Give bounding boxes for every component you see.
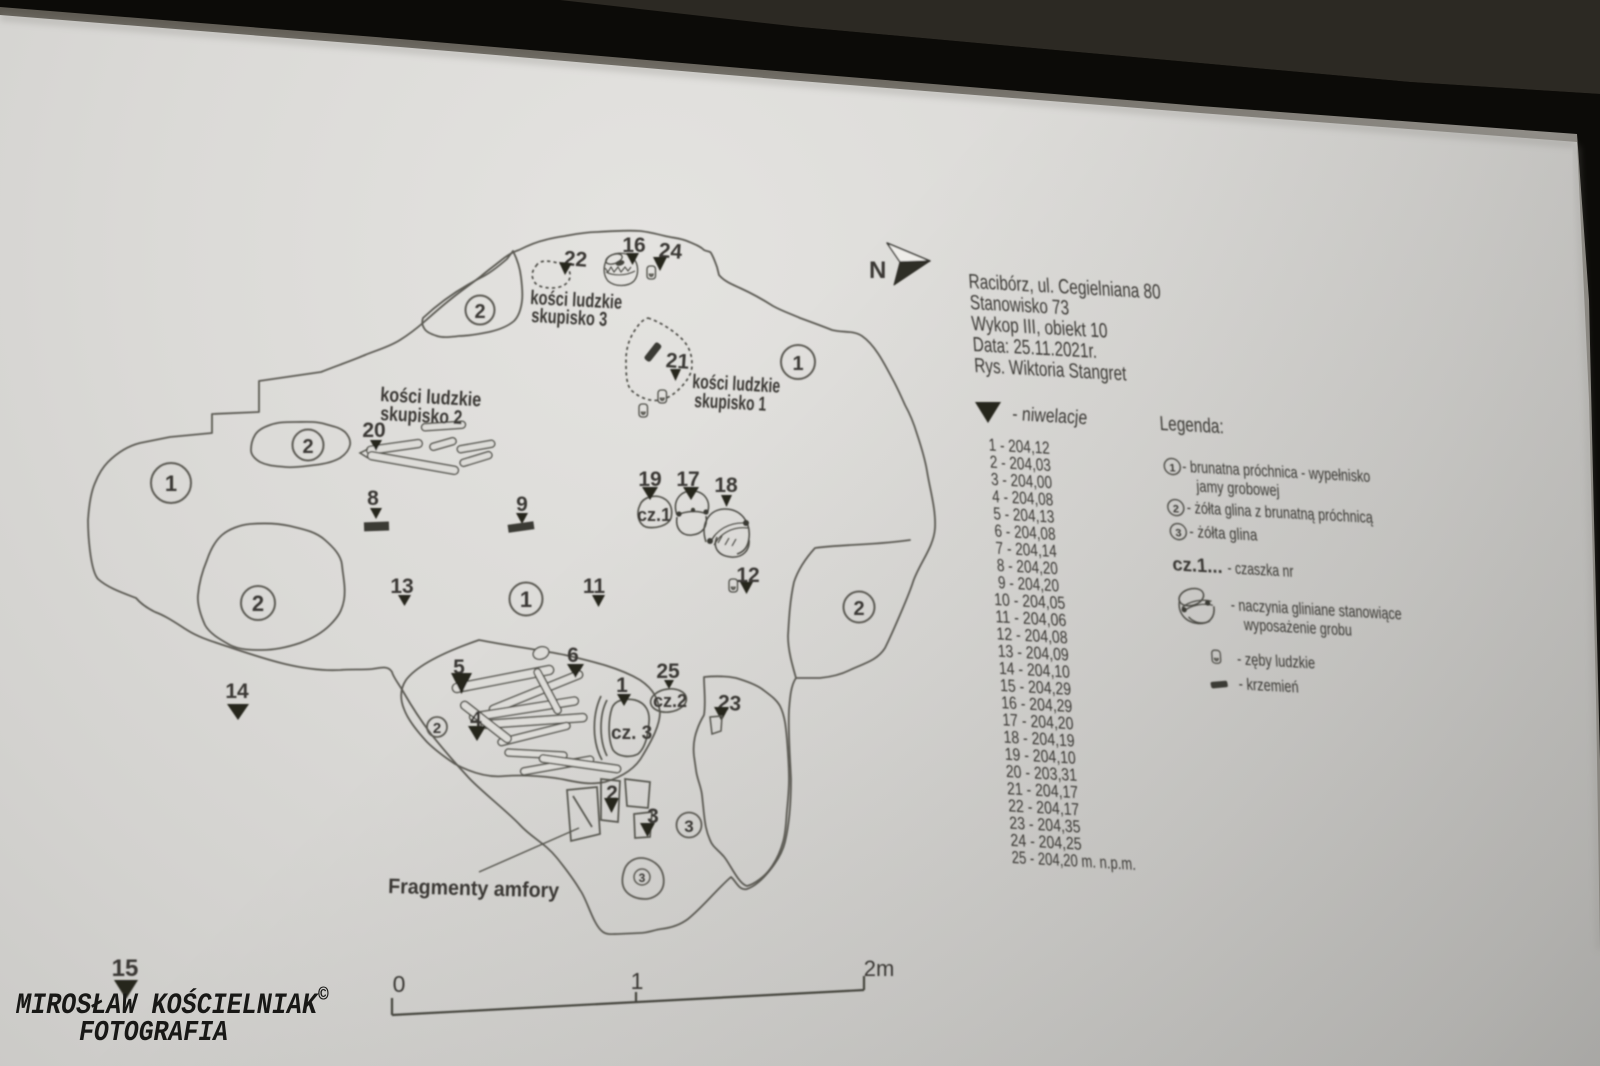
svg-text:Fragmenty amfory: Fragmenty amfory [388,875,560,902]
svg-text:1: 1 [1169,462,1176,474]
svg-text:15: 15 [112,955,139,982]
svg-text:cz.2: cz.2 [653,691,687,711]
svg-text:- krzemień: - krzemień [1238,674,1299,696]
svg-text:1: 1 [631,968,644,994]
svg-text:0: 0 [393,971,406,997]
svg-text:1: 1 [520,587,532,612]
svg-text:1: 1 [616,674,628,697]
svg-text:skupisko 2: skupisko 2 [380,403,463,429]
svg-text:25: 25 [656,660,680,683]
svg-text:©: © [318,986,329,1006]
svg-text:11: 11 [583,575,606,598]
svg-text:3: 3 [684,817,693,836]
svg-text:N: N [869,257,886,284]
svg-text:18: 18 [714,474,738,497]
svg-text:1: 1 [165,471,177,496]
svg-text:skupisko 3: skupisko 3 [531,305,608,331]
svg-text:2: 2 [1173,503,1180,515]
svg-text:skupisko 1: skupisko 1 [694,390,767,416]
svg-text:cz.1...: cz.1... [1172,554,1223,578]
svg-text:3: 3 [1175,527,1182,539]
svg-text:2: 2 [853,598,864,620]
svg-text:2: 2 [474,301,485,323]
svg-text:3: 3 [639,871,646,885]
svg-text:14: 14 [225,680,249,703]
svg-text:20: 20 [362,419,385,442]
svg-text:- czaszka nr: - czaszka nr [1227,558,1294,581]
svg-text:cz. 3: cz. 3 [611,723,652,744]
svg-text:9: 9 [516,493,528,516]
svg-text:8: 8 [367,487,379,510]
svg-text:- niwelacje: - niwelacje [1012,403,1088,429]
svg-text:1: 1 [792,353,803,375]
svg-text:FOTOGRAFIA: FOTOGRAFIA [79,1016,228,1049]
svg-text:6: 6 [567,644,579,667]
svg-text:cz.1: cz.1 [637,505,671,525]
svg-text:13: 13 [390,575,413,598]
svg-text:Legenda:: Legenda: [1159,413,1224,438]
svg-text:2: 2 [302,436,313,458]
svg-text:2: 2 [252,591,264,616]
svg-text:- żółta glina: - żółta glina [1189,522,1259,545]
svg-text:2: 2 [433,720,441,737]
svg-text:2m: 2m [864,956,895,981]
